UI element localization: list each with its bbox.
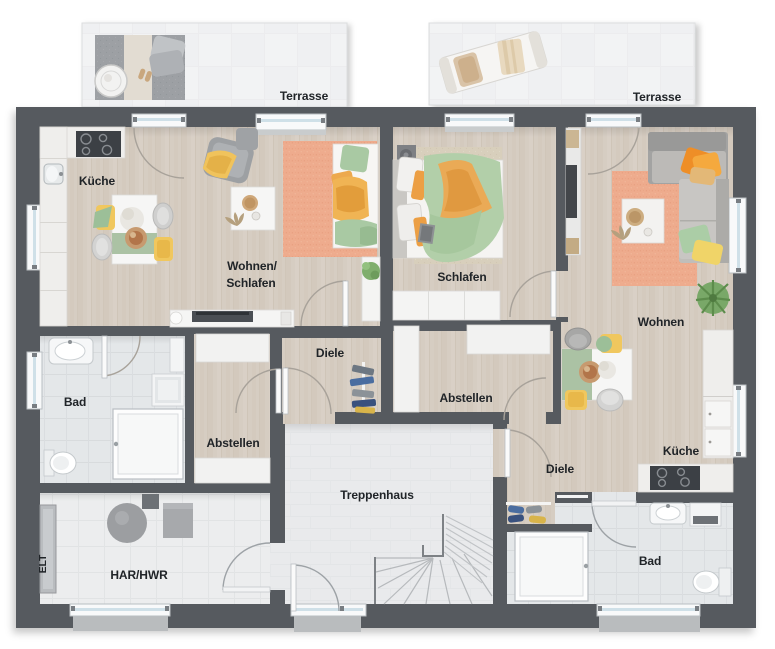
svg-text:Bad: Bad	[64, 395, 86, 409]
svg-text:Wohnen: Wohnen	[638, 315, 685, 329]
svg-text:Abstellen: Abstellen	[206, 436, 259, 450]
svg-text:Bad: Bad	[639, 554, 661, 568]
svg-text:Küche: Küche	[663, 444, 700, 458]
svg-text:Diele: Diele	[316, 346, 345, 360]
svg-text:Terrasse: Terrasse	[280, 89, 329, 103]
svg-text:Terrasse: Terrasse	[633, 90, 682, 104]
svg-text:Wohnen/: Wohnen/	[227, 259, 278, 273]
svg-text:HAR/HWR: HAR/HWR	[110, 568, 168, 582]
svg-text:Schlafen: Schlafen	[437, 270, 486, 284]
svg-text:Küche: Küche	[79, 174, 116, 188]
svg-text:Abstellen: Abstellen	[439, 391, 492, 405]
svg-text:Diele: Diele	[546, 462, 575, 476]
svg-text:ELT: ELT	[37, 554, 49, 573]
svg-text:Schlafen: Schlafen	[226, 276, 275, 290]
svg-text:Treppenhaus: Treppenhaus	[340, 488, 414, 502]
